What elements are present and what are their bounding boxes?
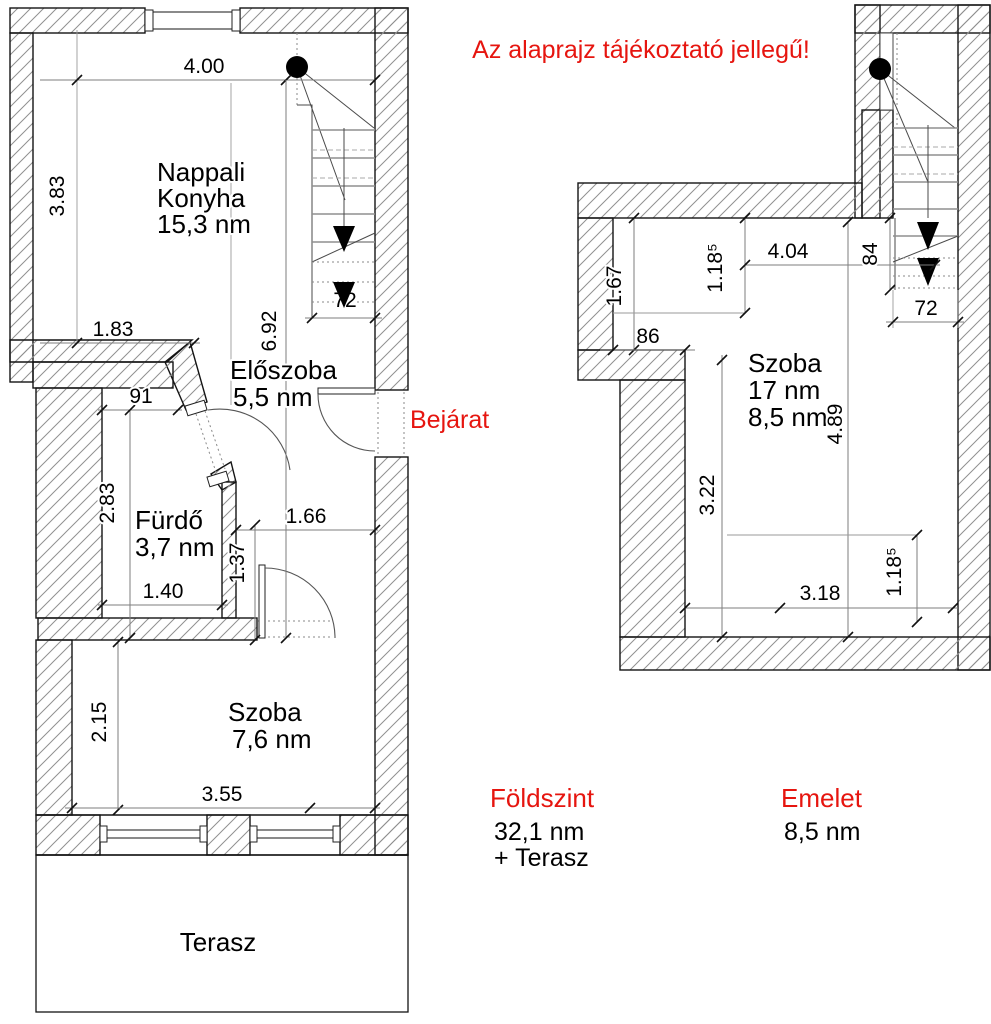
room-door-ground [258,565,335,642]
bathroom-door [185,400,290,486]
room-label-room-ground: Szoba [228,697,302,727]
dim-ground-living-bottom: 1.83 [93,318,134,341]
stair-direction-arrow-ground-1 [333,226,355,252]
dim-ground-bath-height: 2.83 [96,483,119,524]
dim-upper-stair-width: 84 [859,242,882,266]
summary-upper-area: 8,5 nm [784,818,860,846]
entrance-door [318,388,404,455]
dim-upper-bottom-width: 3.18 [800,582,841,605]
stair-start-marker-ground [286,56,308,78]
window-top [145,10,240,31]
summary-ground-title: Földszint [490,783,595,813]
entrance-label: Bejárat [410,406,489,434]
summary-ground-area: 32,1 nm [494,818,584,846]
dim-upper-stair-bottom: 72 [914,297,937,320]
room-area-total-upper: 17 nm [748,375,820,405]
disclaimer-text: Az alaprajz tájékoztató jellegű! [472,36,810,64]
room-area-bathroom: 3,7 nm [135,532,215,562]
dim-ground-bath-bottom: 1.40 [143,580,184,603]
floor-plan-canvas: 72 [0,0,991,1024]
room-label-room-upper: Szoba [748,348,822,378]
room-area-room-ground: 7,6 nm [232,724,312,754]
summary-upper-title: Emelet [781,783,863,813]
upper-floor-plan: Szoba 17 nm 8,5 nm 1.67 1.18⁵ 4.04 84 72… [578,5,990,670]
room-area-hallway: 5,5 nm [233,382,313,412]
dim-upper-nook-height: 1.67 [603,266,626,307]
dim-ground-hall-width: 1.66 [286,505,327,528]
ground-floor-plan: 72 [10,8,408,1012]
dim-upper-top-width: 4.04 [768,240,809,263]
stair-direction-arrow-upper-2 [917,258,939,286]
dim-upper-bottom-height: 1.18⁵ [883,547,906,597]
dim-ground-passage-height: 1.37 [226,543,249,584]
staircase-ground: 72 [286,33,382,323]
dim-upper-left-height: 3.22 [696,475,719,516]
dim-ground-bath-top: 91 [129,385,152,408]
dim-ground-room-width: 3.55 [202,783,243,806]
room-area-net-upper: 8,5 nm [748,402,828,432]
room-label-terrace: Terasz [180,927,257,957]
stair-start-marker-upper [869,58,891,80]
ground-walls [10,8,408,855]
dim-ground-room-height: 2.15 [88,702,111,743]
dim-upper-top-height: 1.18⁵ [704,243,727,293]
floor-plan-page: 72 [0,0,991,1024]
dim-ground-top-width: 4.00 [184,55,225,78]
room-label-bathroom: Fürdő [135,505,203,535]
room-label-hallway: Előszoba [230,355,337,385]
dim-ground-left-height: 3.83 [46,176,69,217]
room-area-living: 15,3 nm [157,209,251,239]
dim-upper-room-height: 4.89 [824,404,847,445]
dim-ground-hall-height: 6.92 [258,311,281,352]
dim-upper-nook-width: 86 [636,325,659,348]
summary-ground-extra: + Terasz [494,844,589,872]
